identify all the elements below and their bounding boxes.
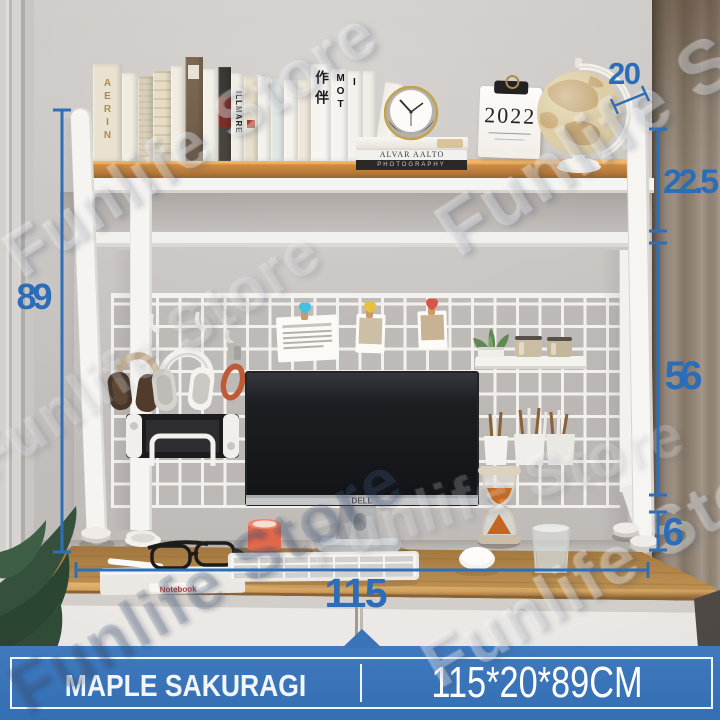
svg-text:6: 6 <box>663 511 685 554</box>
svg-text:22.5: 22.5 <box>663 163 719 201</box>
svg-text:20: 20 <box>608 56 641 91</box>
svg-text:115: 115 <box>325 570 388 616</box>
svg-text:89: 89 <box>17 276 53 317</box>
svg-text:56: 56 <box>665 354 703 398</box>
